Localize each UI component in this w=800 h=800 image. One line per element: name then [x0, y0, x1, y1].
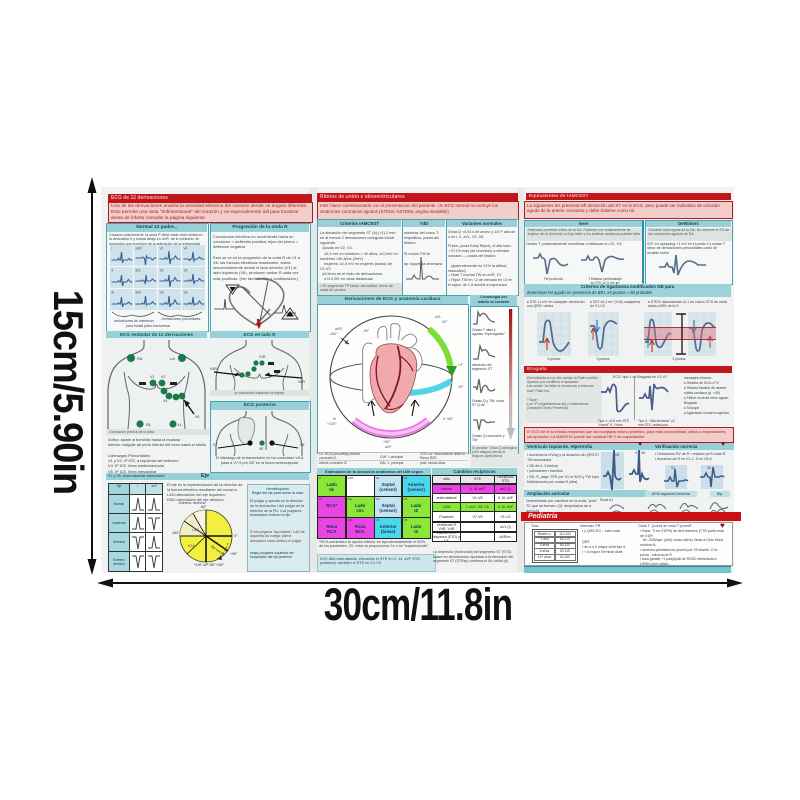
svg-text:0°: 0°: [234, 534, 238, 538]
svg-text:I: I: [112, 247, 113, 251]
svg-text:V1: V1: [160, 247, 164, 251]
svg-text:aVR: aVR: [136, 247, 143, 251]
svg-text:V6: V6: [707, 466, 711, 470]
svg-text:15°: 15°: [458, 385, 464, 389]
svg-text:V2: V2: [161, 375, 165, 379]
svg-text:V8: V8: [259, 447, 263, 451]
svg-text:V4: V4: [163, 399, 167, 403]
svg-text:+90°: +90°: [383, 440, 391, 444]
svg-text:+120°: +120°: [327, 422, 337, 426]
svg-text:V4R: V4R: [210, 367, 217, 371]
svg-text:II: II: [112, 269, 114, 273]
svg-text:RAD: RAD: [188, 544, 196, 548]
svg-text:RA: RA: [137, 356, 143, 361]
svg-text:aVR: aVR: [335, 327, 342, 331]
svg-text:V6R: V6R: [298, 380, 305, 384]
svg-text:I 0°: I 0°: [458, 363, 464, 367]
svg-text:aVL: aVL: [435, 315, 441, 319]
svg-text:aVF: aVF: [136, 291, 142, 295]
svg-text:+90°: +90°: [230, 552, 238, 556]
svg-text:aVL: aVL: [136, 269, 142, 273]
svg-text:RL: RL: [146, 422, 152, 427]
svg-text:II +60°: II +60°: [443, 417, 454, 421]
svg-text:180°: 180°: [172, 531, 180, 535]
svg-text:V1, V6: V1, V6: [635, 451, 645, 455]
svg-text:III: III: [333, 417, 336, 421]
svg-text:V9: V9: [300, 443, 304, 447]
svg-text:V1R: V1R: [259, 355, 266, 359]
svg-text:aVF: aVF: [385, 445, 392, 449]
svg-text:V3: V3: [160, 291, 164, 295]
svg-text:-90°: -90°: [363, 329, 370, 333]
svg-text:-90°: -90°: [200, 505, 207, 509]
svg-text:V5: V5: [184, 269, 188, 273]
svg-text:V6: V6: [184, 291, 188, 295]
svg-text:V5: V5: [615, 453, 619, 457]
svg-text:V7: V7: [213, 443, 217, 447]
svg-text:LL: LL: [178, 422, 183, 427]
svg-text:III: III: [112, 291, 115, 295]
svg-text:LAD: LAD: [192, 528, 199, 532]
svg-text:+100° a/P 180°+180°: +100° a/P 180°+180°: [194, 563, 225, 567]
svg-text:-30°: -30°: [441, 320, 448, 324]
svg-text:-150°: -150°: [329, 332, 338, 336]
svg-text:V6: V6: [195, 415, 199, 419]
svg-text:V2: V2: [160, 269, 164, 273]
svg-text:LA: LA: [170, 356, 175, 361]
svg-text:V1: V1: [150, 375, 154, 379]
svg-text:V4: V4: [184, 247, 188, 251]
